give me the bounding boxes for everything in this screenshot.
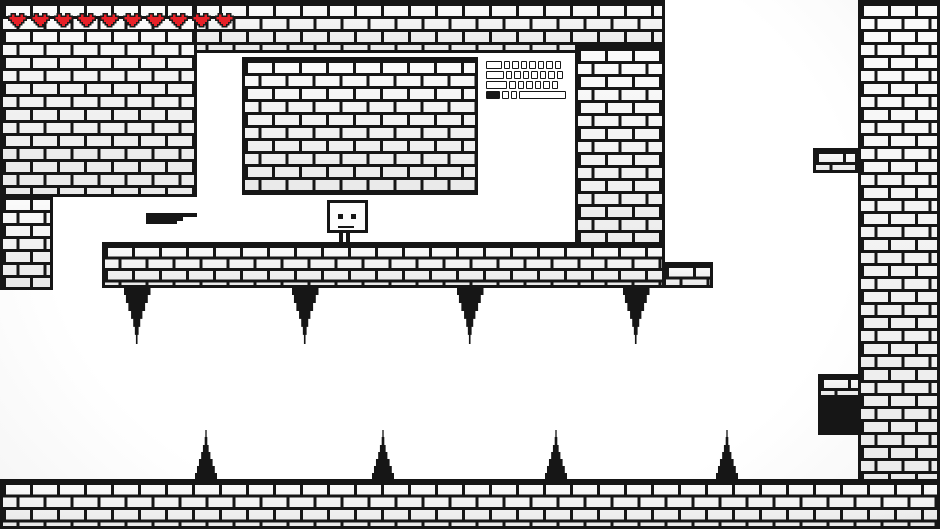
heart-icon <box>8 13 27 30</box>
player-character <box>327 200 368 242</box>
ground-spike <box>716 430 738 480</box>
heart-icon <box>54 13 73 30</box>
gun-barrel <box>183 213 197 217</box>
keyboard-key <box>509 81 516 89</box>
health-hearts <box>8 13 234 30</box>
player-mouth <box>338 226 354 229</box>
game-viewport[interactable] <box>0 0 940 529</box>
heart-icon <box>123 13 142 30</box>
heart-icon <box>31 13 50 30</box>
player-left-eye <box>338 214 343 219</box>
keyboard-key <box>531 71 538 79</box>
keyboard-row <box>486 61 566 69</box>
keyboard-key <box>518 81 525 89</box>
ground-spike <box>372 430 394 480</box>
keyboard-key <box>552 81 559 89</box>
keyboard-key <box>514 71 521 79</box>
keyboard-key <box>512 61 519 69</box>
heart-icon <box>146 13 165 30</box>
heart-icon <box>192 13 211 30</box>
keyboard-key <box>486 71 504 79</box>
keyboard-key <box>502 91 509 99</box>
ground-floor <box>0 479 940 529</box>
hanging-spike <box>623 287 650 344</box>
right-wall <box>858 0 940 529</box>
keyboard-key <box>535 81 542 89</box>
hanging-spike <box>457 287 484 344</box>
player-left-leg <box>339 232 343 242</box>
hanging-spike <box>292 287 319 344</box>
left-column <box>0 194 53 290</box>
keyboard-key <box>546 61 553 69</box>
gun-body <box>146 213 177 224</box>
gun-pickup <box>146 213 197 224</box>
heart-icon <box>215 13 234 30</box>
keyboard-key <box>548 71 555 79</box>
hanging-spike <box>124 287 151 344</box>
right-upper-ledge <box>813 148 858 173</box>
ground-spike <box>545 430 567 480</box>
heart-icon <box>77 13 96 30</box>
main-platform <box>102 242 665 288</box>
player-body <box>327 200 368 233</box>
keyboard-key <box>538 61 545 69</box>
keyboard-key <box>523 71 530 79</box>
right-lower-ledge <box>818 374 861 398</box>
ground-spike <box>195 430 217 480</box>
keyboard-key <box>504 61 511 69</box>
keyboard-key <box>519 91 566 99</box>
keyboard-pickup-graphic <box>486 61 566 101</box>
player-right-eye <box>351 214 356 219</box>
heart-icon <box>100 13 119 30</box>
player-right-leg <box>346 232 350 242</box>
keyboard-row <box>486 71 566 79</box>
keyboard-key <box>486 81 507 89</box>
keyboard-key <box>529 61 536 69</box>
keyboard-key <box>540 71 547 79</box>
keyboard-key <box>543 81 550 89</box>
keyboard-row <box>486 91 566 99</box>
keyboard-key <box>511 91 518 99</box>
keyboard-key <box>555 61 562 69</box>
mid-hanging-block <box>242 57 478 195</box>
keyboard-key <box>526 81 533 89</box>
keyboard-key <box>486 61 502 69</box>
heart-icon <box>169 13 188 30</box>
keyboard-key-filled <box>486 91 500 99</box>
keyboard-key <box>557 71 564 79</box>
keyboard-key <box>521 61 528 69</box>
platform-right-step <box>663 262 713 288</box>
black-block <box>818 398 861 435</box>
keyboard-row <box>486 81 566 89</box>
keyboard-key <box>506 71 513 79</box>
